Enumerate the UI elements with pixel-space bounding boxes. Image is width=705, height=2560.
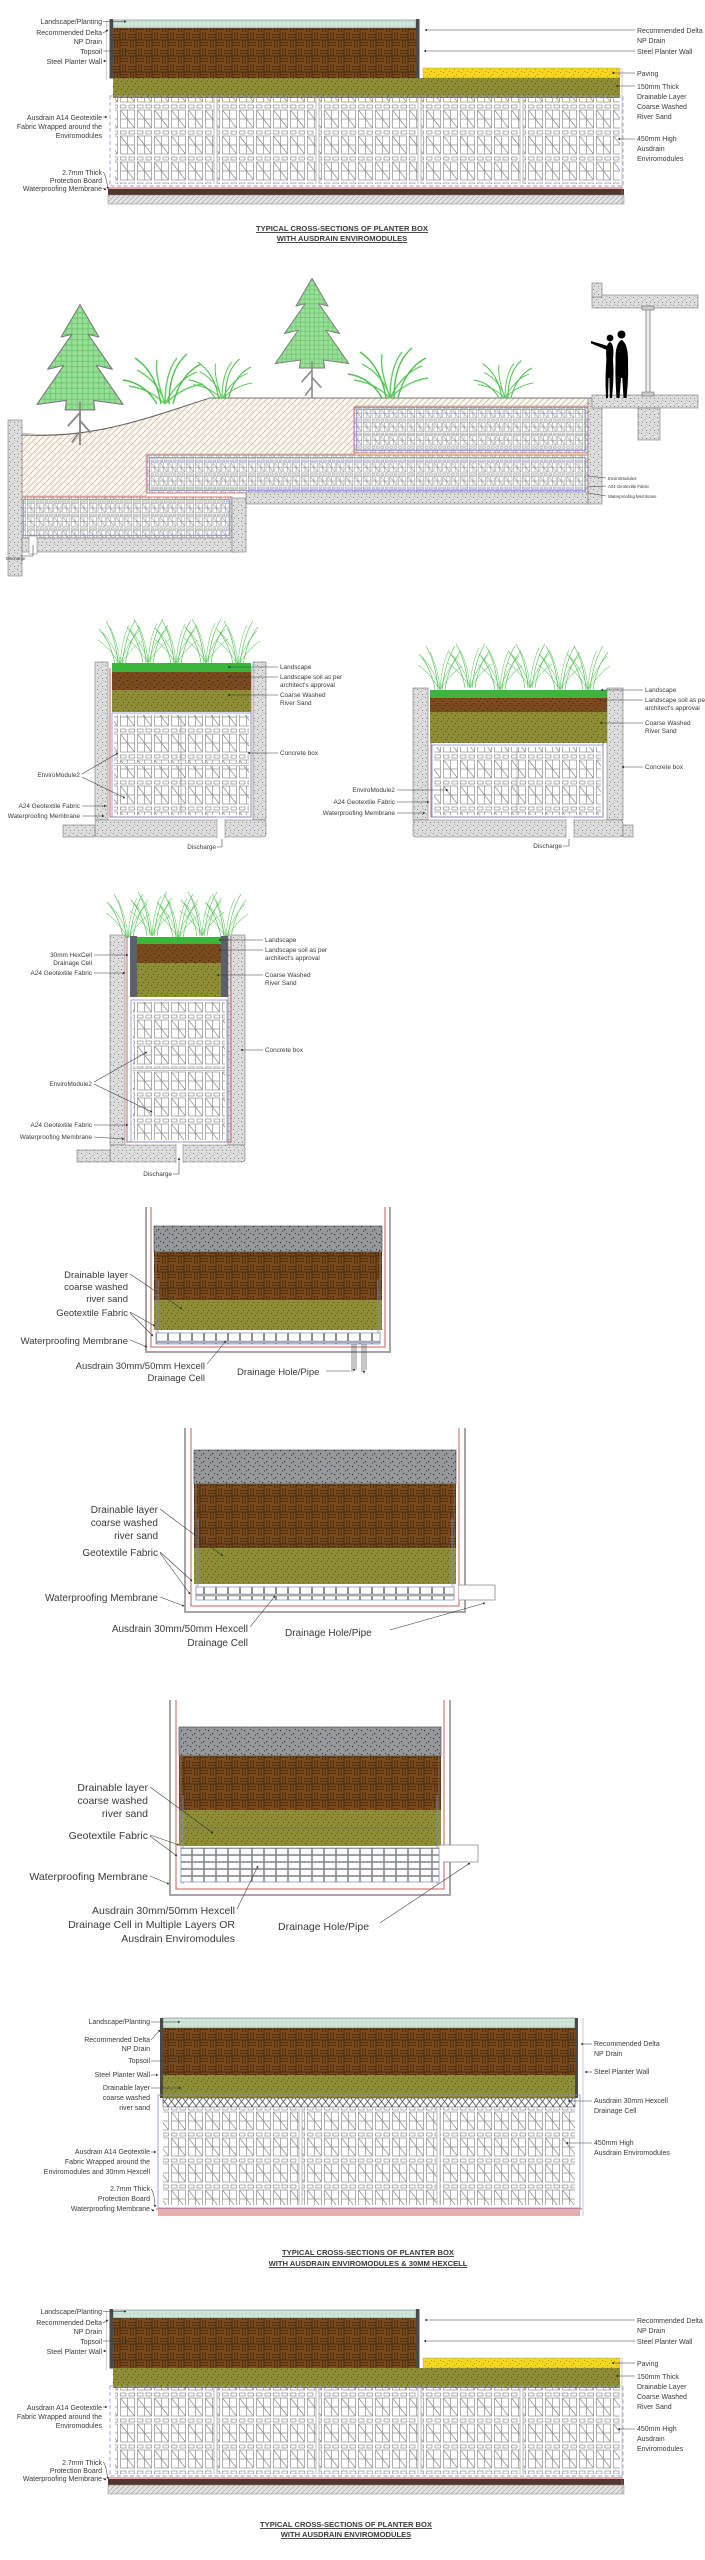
label: Drainable Layer xyxy=(637,94,687,101)
label: Enviromodules xyxy=(637,156,684,163)
label: coarse washed xyxy=(103,2095,150,2102)
concrete-wall-left xyxy=(413,688,428,820)
paving-layer xyxy=(194,1450,456,1484)
enviromodules-layer xyxy=(115,2388,620,2474)
label: Drainage Cell xyxy=(187,1638,248,1649)
hexcell-multilayer xyxy=(181,1848,439,1882)
label: A24 Geotextile Fabric xyxy=(31,1122,93,1129)
label: 2.7mm Thick xyxy=(62,2460,102,2467)
label: A24 Geotextile Fabric xyxy=(334,799,396,806)
label: Steel Planter Wall xyxy=(47,2349,103,2356)
label: Landscape xyxy=(645,687,677,694)
enviromodules-layer xyxy=(163,2108,575,2205)
label: Waterproofing Membrane xyxy=(8,813,81,820)
drawing-sheet: Landscape/Planting Recommended Delta NP … xyxy=(0,0,705,2560)
shrub xyxy=(123,354,203,404)
label: EnviroModule2 xyxy=(608,476,637,481)
section-hexcell-detail-3: Drainable layer coarse washed river sand… xyxy=(0,1690,705,1952)
river-sand-layer xyxy=(137,963,221,997)
label: Geotextile Fabric xyxy=(56,1308,128,1319)
label: Recommended Delta xyxy=(36,30,102,37)
steel-planter-wall-left xyxy=(110,2309,114,2369)
label: Recommended Delta xyxy=(637,28,703,35)
label: Waterproofing Membrane xyxy=(23,2476,102,2483)
label: Waterproofing Membrane xyxy=(20,1134,93,1141)
label: River Sand xyxy=(637,2404,672,2411)
drainage-outlet xyxy=(439,1845,478,1862)
label: Concrete box xyxy=(645,764,684,771)
label: A24 Geotextile Fabric xyxy=(31,970,93,977)
label: EnviroModule2 xyxy=(49,1081,92,1088)
title-line: TYPICAL CROSS-SECTIONS OF PLANTER BOX xyxy=(282,2248,454,2257)
label: Landscape/Planting xyxy=(41,19,103,26)
label: Ausdrain 30mm/50mm Hexcell xyxy=(76,1361,205,1372)
labels-right: Recommended Delta NP Drain Steel Planter… xyxy=(594,2041,670,2157)
label: Coarse Washed xyxy=(645,720,691,727)
label: Waterproofing Membrane xyxy=(45,1593,158,1604)
hexcell-side-strip-left xyxy=(130,936,137,997)
drawing-title: TYPICAL CROSS-SECTIONS OF PLANTER BOX WI… xyxy=(260,2520,432,2539)
label: Geotextile Fabric xyxy=(69,1830,148,1842)
section-planter-enviromodules-bottom: Landscape/Planting Recommended Delta NP … xyxy=(0,2298,705,2560)
label: Paving xyxy=(637,2361,659,2368)
title-line: TYPICAL CROSS-SECTIONS OF PLANTER BOX xyxy=(256,224,428,233)
label: Drainage Cell xyxy=(594,2108,637,2115)
label: Drainable layer xyxy=(91,1505,159,1516)
planter-cross-section-drawing xyxy=(156,2018,583,2216)
label: Ausdrain A14 Geotextile xyxy=(75,2149,150,2156)
label: EnviroModule2 xyxy=(352,787,395,794)
concrete-wall-right xyxy=(253,662,266,820)
topsoil-layer xyxy=(179,1756,441,1810)
label: Landscape soil as per xyxy=(645,697,705,704)
label: Ausdrain A14 Geotextile xyxy=(27,2405,102,2412)
label: Protection Board xyxy=(50,178,102,185)
enviromodules xyxy=(434,747,601,815)
label: Topsoil xyxy=(128,2058,150,2065)
label: 2.7mm Thick xyxy=(110,2186,150,2193)
label: Drainable layer xyxy=(77,1782,148,1794)
label: Recommended Delta xyxy=(594,2041,660,2048)
grass xyxy=(106,892,248,938)
pine-tree xyxy=(275,278,349,398)
planter-cross-section-drawing xyxy=(107,19,625,204)
concrete-wall-right xyxy=(607,688,623,820)
label: NP Drain xyxy=(74,39,102,46)
label: Drainage Cell xyxy=(53,960,92,967)
landscape-layer xyxy=(137,937,221,944)
label: coarse washed xyxy=(77,1795,148,1807)
landscape-layer xyxy=(112,663,251,672)
label: Fabric Wrapped around the xyxy=(65,2159,150,2166)
label: Concrete box xyxy=(265,1047,304,1054)
label: Steel Planter Wall xyxy=(95,2072,151,2079)
section-hexcell-detail-1: Drainable layer coarse washed river sand… xyxy=(0,1195,705,1390)
labels-right: Recommended Delta NP Drain Steel Planter… xyxy=(637,28,703,163)
label: coarse washed xyxy=(64,1282,128,1293)
label: Recommended Delta xyxy=(36,2320,102,2327)
label: coarse washed xyxy=(91,1518,158,1529)
label: Steel Planter Wall xyxy=(594,2069,650,2076)
label: A24 Geotextile Fabric xyxy=(19,803,81,810)
label: Steel Planter Wall xyxy=(47,59,103,66)
sand-drainable-layer xyxy=(113,78,620,98)
title-line: WITH AUSDRAIN ENVIROMODULES xyxy=(277,234,408,243)
label: architect's approval xyxy=(280,682,335,689)
label: Enviromodules xyxy=(56,2423,103,2430)
paving-layer xyxy=(154,1226,382,1252)
drainage-pipes xyxy=(352,1344,366,1373)
label: river sand xyxy=(119,2105,150,2112)
label: River Sand xyxy=(645,728,677,735)
structural-slab xyxy=(108,195,624,204)
label: NP Drain xyxy=(637,2328,665,2335)
concrete-wall-left xyxy=(95,662,108,820)
landscape-planting-layer xyxy=(113,2310,416,2318)
label: Enviromodules xyxy=(56,133,103,140)
label: Landscape soil as per xyxy=(265,947,328,954)
label: Landscape xyxy=(280,664,312,671)
steel-planter-wall-right xyxy=(416,2309,420,2369)
planter-right xyxy=(413,644,633,838)
label: Enviromodules xyxy=(637,2446,684,2453)
protection-board-layer xyxy=(108,189,624,195)
topsoil-layer xyxy=(163,2028,575,2075)
label: Waterproofing Membrane xyxy=(608,494,657,499)
grass xyxy=(98,619,260,665)
concrete-base xyxy=(413,820,623,837)
label: 450mm High xyxy=(637,136,677,143)
label: Landscape/Planting xyxy=(89,2019,151,2026)
label: NP Drain xyxy=(637,38,665,45)
landscape-soil-layer xyxy=(137,944,221,963)
label: 150mm Thick xyxy=(637,84,679,91)
river-sand-layer xyxy=(112,690,251,712)
column xyxy=(646,308,650,395)
discharge-pipe xyxy=(566,819,574,838)
label: Landscape/Planting xyxy=(41,2309,103,2316)
label: Steel Planter Wall xyxy=(637,2339,693,2346)
discharge-pipe xyxy=(176,1144,183,1163)
protection-board-layer xyxy=(108,2479,624,2485)
concrete-wall-left xyxy=(110,935,125,1145)
shrub xyxy=(348,348,428,398)
labels-left: Landscape/Planting Recommended Delta NP … xyxy=(17,19,103,193)
concrete-base xyxy=(95,820,266,837)
discharge-label: Discharge xyxy=(143,1171,172,1178)
discharge-label: Discharge xyxy=(533,843,562,850)
protection-board-layer xyxy=(158,2210,580,2216)
hexcell-drainage-layer xyxy=(196,1587,454,1600)
label: Ausdrain 30mm Hexcell xyxy=(594,2098,668,2105)
label: Ausdrain xyxy=(637,2436,665,2443)
label: Protection Board xyxy=(50,2468,102,2475)
label: Recommended Delta xyxy=(84,2037,150,2044)
steel-planter-wall-left xyxy=(160,2018,163,2098)
labels-left: Landscape/Planting Recommended Delta NP … xyxy=(44,2019,151,2213)
enviromodules-layer xyxy=(115,98,620,184)
label: Coarse Washed xyxy=(637,2394,687,2401)
label: Waterproofing Membrane xyxy=(21,1336,128,1347)
planter-cross-section-drawing xyxy=(107,2309,625,2494)
label: Fabric Wrapped around the xyxy=(17,124,102,131)
title-line: WITH AUSDRAIN ENVIROMODULES & 30MM HEXCE… xyxy=(269,2259,468,2268)
steel-planter-wall-right xyxy=(416,19,420,79)
drainage-outlet xyxy=(459,1585,495,1600)
landscape-layer xyxy=(430,690,607,698)
label: architect's approval xyxy=(265,955,320,962)
label: NP Drain xyxy=(74,2329,102,2336)
topsoil-layer xyxy=(113,2318,416,2368)
label: Protection Board xyxy=(98,2196,150,2203)
steel-planter-wall-right xyxy=(575,2018,578,2098)
label: 450mm High xyxy=(594,2140,634,2147)
planter-left xyxy=(63,619,266,838)
label: Recommended Delta xyxy=(637,2318,703,2325)
section-roof-garden-elevation: EnviroModule2 A24 Geotextile Fabric Wate… xyxy=(0,268,705,590)
label: Geotextile Fabric xyxy=(82,1548,158,1559)
drawing-title: TYPICAL CROSS-SECTIONS OF PLANTER BOX WI… xyxy=(269,2248,468,2268)
label: Waterproofing Membrane xyxy=(323,810,396,817)
label: Drainable Layer xyxy=(637,2384,687,2391)
label: Ausdrain 30mm/50mm Hexcell xyxy=(92,1905,235,1917)
topsoil-layer xyxy=(113,28,416,78)
river-sand-layer xyxy=(430,712,607,743)
label: river sand xyxy=(114,1531,158,1542)
section-planter-enviromodules-top: Landscape/Planting Recommended Delta NP … xyxy=(0,10,705,255)
steel-planter-wall-left xyxy=(110,19,114,79)
sand-drainable-layer xyxy=(163,2075,575,2098)
label: Coarse Washed xyxy=(265,972,311,979)
section-concrete-planters-pair: Landscape Landscape soil as per architec… xyxy=(0,612,705,862)
label: Waterproofing Membrane xyxy=(23,186,102,193)
label: Drainage Cell xyxy=(147,1373,205,1384)
landscape-planting-layer xyxy=(163,2018,575,2028)
drawing-title: TYPICAL CROSS-SECTIONS OF PLANTER BOX WI… xyxy=(256,224,428,243)
label: Concrete box xyxy=(280,750,319,757)
grass xyxy=(418,644,610,690)
label: Drainable layer xyxy=(64,1270,128,1281)
label: Topsoil xyxy=(80,49,102,56)
label: A24 Geotextile Fabric xyxy=(608,484,650,489)
label: Waterproofing Membrane xyxy=(29,1871,148,1883)
topsoil-layer xyxy=(154,1252,382,1300)
label: Coarse Washed xyxy=(280,692,326,699)
label: 2.7mm Thick xyxy=(62,170,102,177)
label: Drainage Hole/Pipe xyxy=(237,1367,319,1378)
landscape-soil-layer xyxy=(430,698,607,712)
paving-layer xyxy=(423,2358,620,2368)
label: River Sand xyxy=(280,700,312,707)
sand-drainable-layer xyxy=(113,2368,620,2388)
label: River Sand xyxy=(265,980,297,987)
people-silhouettes xyxy=(591,331,628,399)
label: Ausdrain xyxy=(637,146,665,153)
discharge-label: Discharge xyxy=(6,556,26,561)
label: Ausdrain 30mm/50mm Hexcell xyxy=(112,1624,248,1635)
landscape-soil-layer xyxy=(112,672,251,690)
label: Topsoil xyxy=(80,2339,102,2346)
pine-tree xyxy=(37,305,123,445)
sand-layer xyxy=(194,1548,456,1584)
label: river sand xyxy=(102,1808,148,1820)
shrub xyxy=(474,361,534,399)
label: Ausdrain A14 Geotextile xyxy=(27,115,102,122)
hexcell-side-strip-right xyxy=(221,936,228,997)
label: Ausdrain Enviromodules xyxy=(121,1933,235,1945)
label: Drainage Hole/Pipe xyxy=(278,1921,369,1933)
label: Landscape soil as per xyxy=(280,674,343,681)
label: Landscape xyxy=(265,937,297,944)
label: 30mm HexCell xyxy=(50,952,92,959)
section-planter-enviromodules-hexcell: Landscape/Planting Recommended Delta NP … xyxy=(0,2012,705,2274)
label: Drainable layer xyxy=(103,2085,151,2092)
labels-right: Recommended Delta NP Drain Steel Planter… xyxy=(637,2318,703,2453)
label: Drainage Cell in Multiple Layers OR xyxy=(68,1919,235,1931)
label: Ausdrain Enviromodules xyxy=(594,2150,670,2157)
section-hexcell-detail-2: Drainable layer coarse washed river sand… xyxy=(0,1420,705,1655)
label: Paving xyxy=(637,71,659,78)
label: architect's approval xyxy=(645,705,700,712)
title-line: TYPICAL CROSS-SECTIONS OF PLANTER BOX xyxy=(260,2520,432,2529)
label: river sand xyxy=(86,1294,128,1305)
label: Coarse Washed xyxy=(637,104,687,111)
label: EnviroModule2 xyxy=(37,772,80,779)
label: Waterproofing Membrane xyxy=(71,2206,150,2213)
hexcell-drainage-layer xyxy=(156,1333,380,1344)
label: 150mm Thick xyxy=(637,2374,679,2381)
discharge-pipe xyxy=(217,819,225,838)
paving-layer xyxy=(423,68,620,78)
discharge-label: Discharge xyxy=(187,844,216,851)
label: River Sand xyxy=(637,114,672,121)
label: Fabric Wrapped around the xyxy=(17,2414,102,2421)
labels-left: Landscape/Planting Recommended Delta NP … xyxy=(17,2309,103,2483)
title-line: WITH AUSDRAIN ENVIROMODULES xyxy=(281,2530,412,2539)
structural-slab xyxy=(108,2485,624,2494)
label: Drainage Hole/Pipe xyxy=(285,1628,372,1639)
paving-layer xyxy=(179,1727,441,1756)
topsoil-layer xyxy=(194,1484,456,1548)
label: 450mm High xyxy=(637,2426,677,2433)
sand-layer xyxy=(154,1300,382,1330)
label: NP Drain xyxy=(594,2051,622,2058)
section-concrete-planter-hexcell: 30mm HexCell Drainage Cell A24 Geotextil… xyxy=(0,862,705,1187)
landscape-planting-layer xyxy=(113,20,416,28)
label: NP Drain xyxy=(122,2046,150,2053)
label: Enviromodules and 30mm Hexcell xyxy=(44,2169,151,2176)
label: Steel Planter Wall xyxy=(637,49,693,56)
